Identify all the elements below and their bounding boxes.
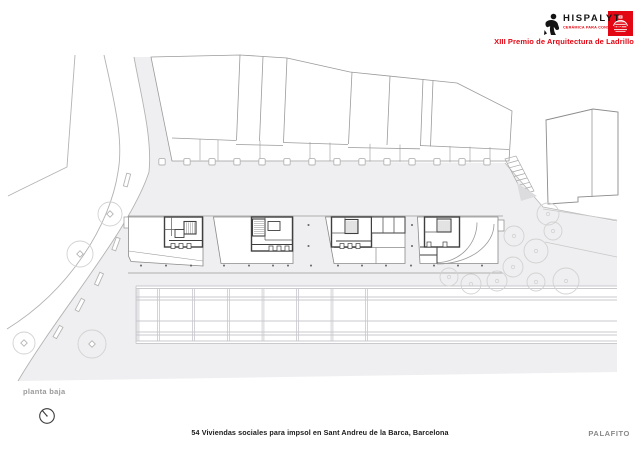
header-graphics	[0, 0, 640, 453]
presentation-slide: HISPALYT CERÁMICA PARA CONSTRUIR XIII Pr…	[0, 0, 640, 453]
hispalyt-figure-icon	[544, 14, 559, 35]
north-arrow-icon	[40, 409, 55, 424]
